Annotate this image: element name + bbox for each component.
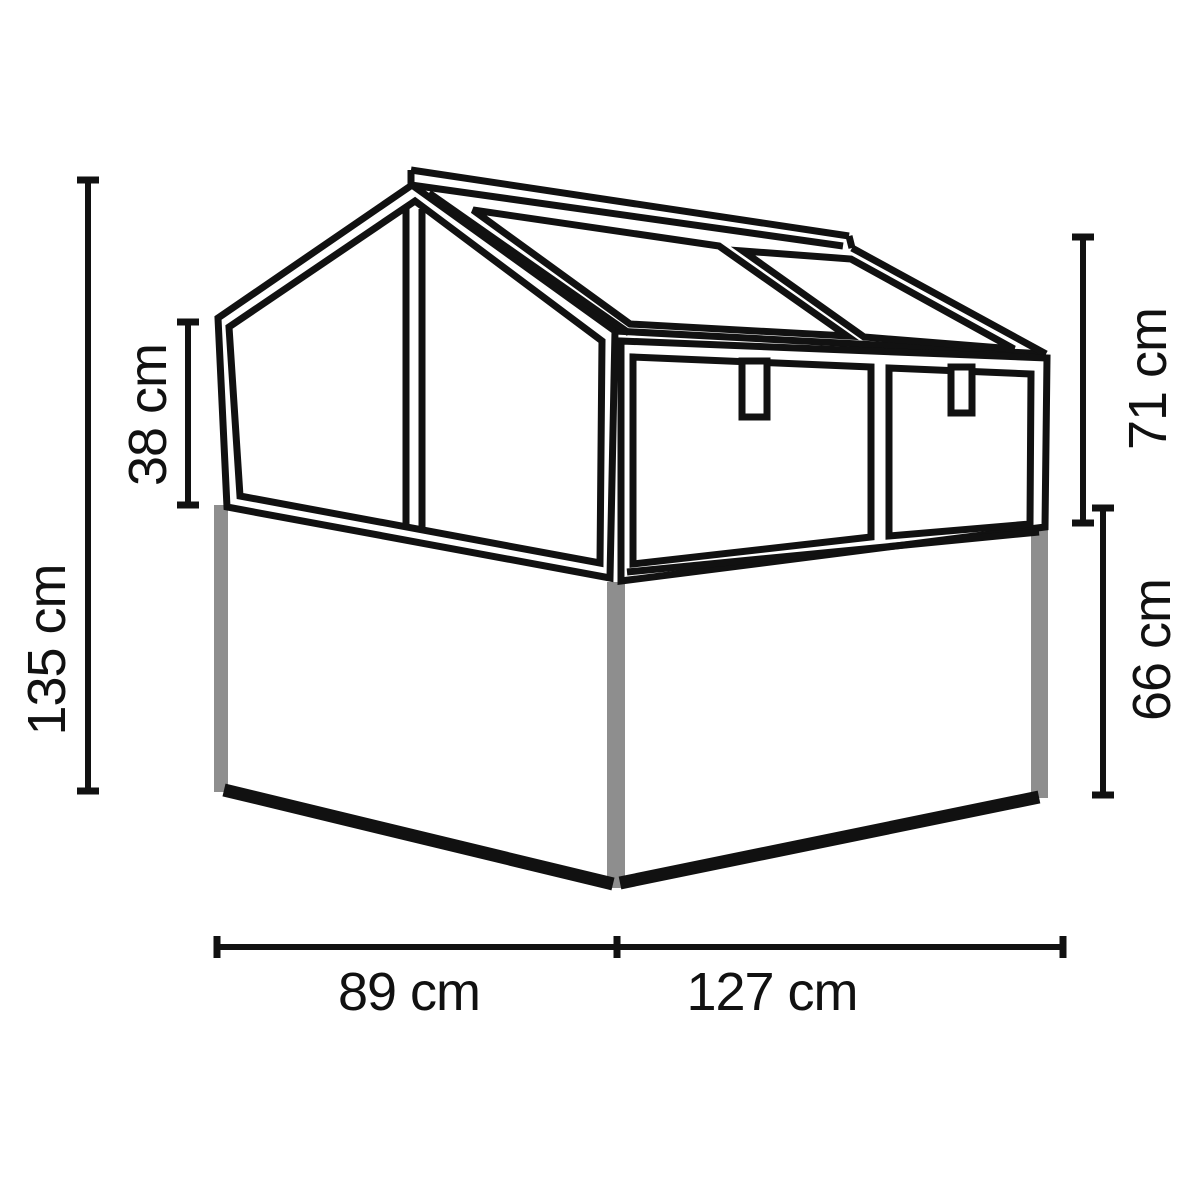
dimension-top-section-height: 71 cm	[1072, 237, 1178, 523]
dim-label-127: 127 cm	[686, 962, 857, 1022]
base-bottom-edge-front	[620, 797, 1039, 883]
gable-outer-frame	[218, 185, 615, 578]
dim-label-66: 66 cm	[1122, 579, 1182, 721]
ridge-cap-right-step	[849, 236, 852, 248]
gable-end-face	[218, 185, 615, 578]
dimension-footprint: 89 cm 127 cm	[217, 936, 1063, 1022]
front-panel-right-handle	[951, 367, 972, 413]
dimension-side-glazing-height: 38 cm	[118, 322, 199, 505]
base-bottom-edge-left	[224, 790, 613, 884]
dim-label-89: 89 cm	[338, 962, 480, 1022]
greenhouse-dimension-drawing: 135 cm 38 cm 71 cm 66 cm 89 cm 127 cm	[0, 0, 1200, 1200]
front-panel-left-handle	[742, 361, 767, 417]
base-corner-post-right	[1031, 527, 1048, 798]
front-outer-frame	[621, 341, 1047, 581]
dimension-total-height: 135 cm	[17, 180, 99, 791]
base-corner-post-front	[607, 582, 625, 888]
base-corner-post-left	[214, 505, 228, 792]
dim-label-71: 71 cm	[1118, 308, 1178, 450]
dimension-base-height: 66 cm	[1092, 508, 1182, 795]
dim-label-38: 38 cm	[118, 344, 178, 486]
dim-label-135: 135 cm	[17, 564, 77, 735]
roof-slope	[411, 170, 1046, 354]
gable-inner-frame	[229, 201, 602, 563]
diagram-canvas: 135 cm 38 cm 71 cm 66 cm 89 cm 127 cm	[0, 0, 1200, 1200]
front-face	[621, 341, 1047, 581]
